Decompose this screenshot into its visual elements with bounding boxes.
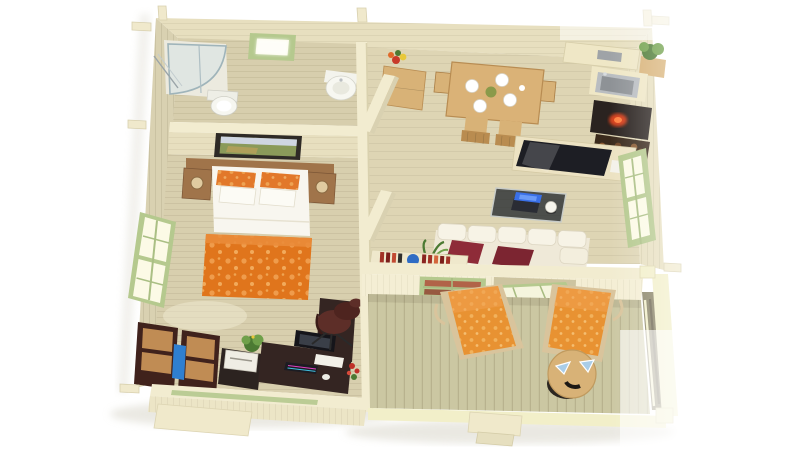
blue-bin [172, 344, 186, 380]
lamp-left [191, 177, 203, 189]
log-end [120, 384, 139, 393]
wall-painting [214, 133, 302, 160]
log-end [128, 120, 146, 129]
log-end [132, 22, 151, 31]
laptop [511, 192, 542, 213]
pillow-white-left [219, 186, 256, 205]
skylight [248, 33, 296, 61]
corner-sink [324, 70, 358, 100]
coffee-table [491, 188, 566, 222]
log-end [158, 6, 167, 20]
log-end [357, 8, 367, 22]
bath-bedroom-wall [168, 122, 362, 160]
round-table [547, 350, 596, 399]
printer [224, 350, 258, 372]
pillow-white-right [259, 188, 296, 207]
floor-plan-svg [0, 0, 800, 450]
center-bowl [486, 87, 497, 98]
floor-plan-render [0, 0, 800, 450]
mouse [322, 374, 330, 380]
lamp-right [316, 181, 328, 193]
bathroom [154, 33, 362, 126]
